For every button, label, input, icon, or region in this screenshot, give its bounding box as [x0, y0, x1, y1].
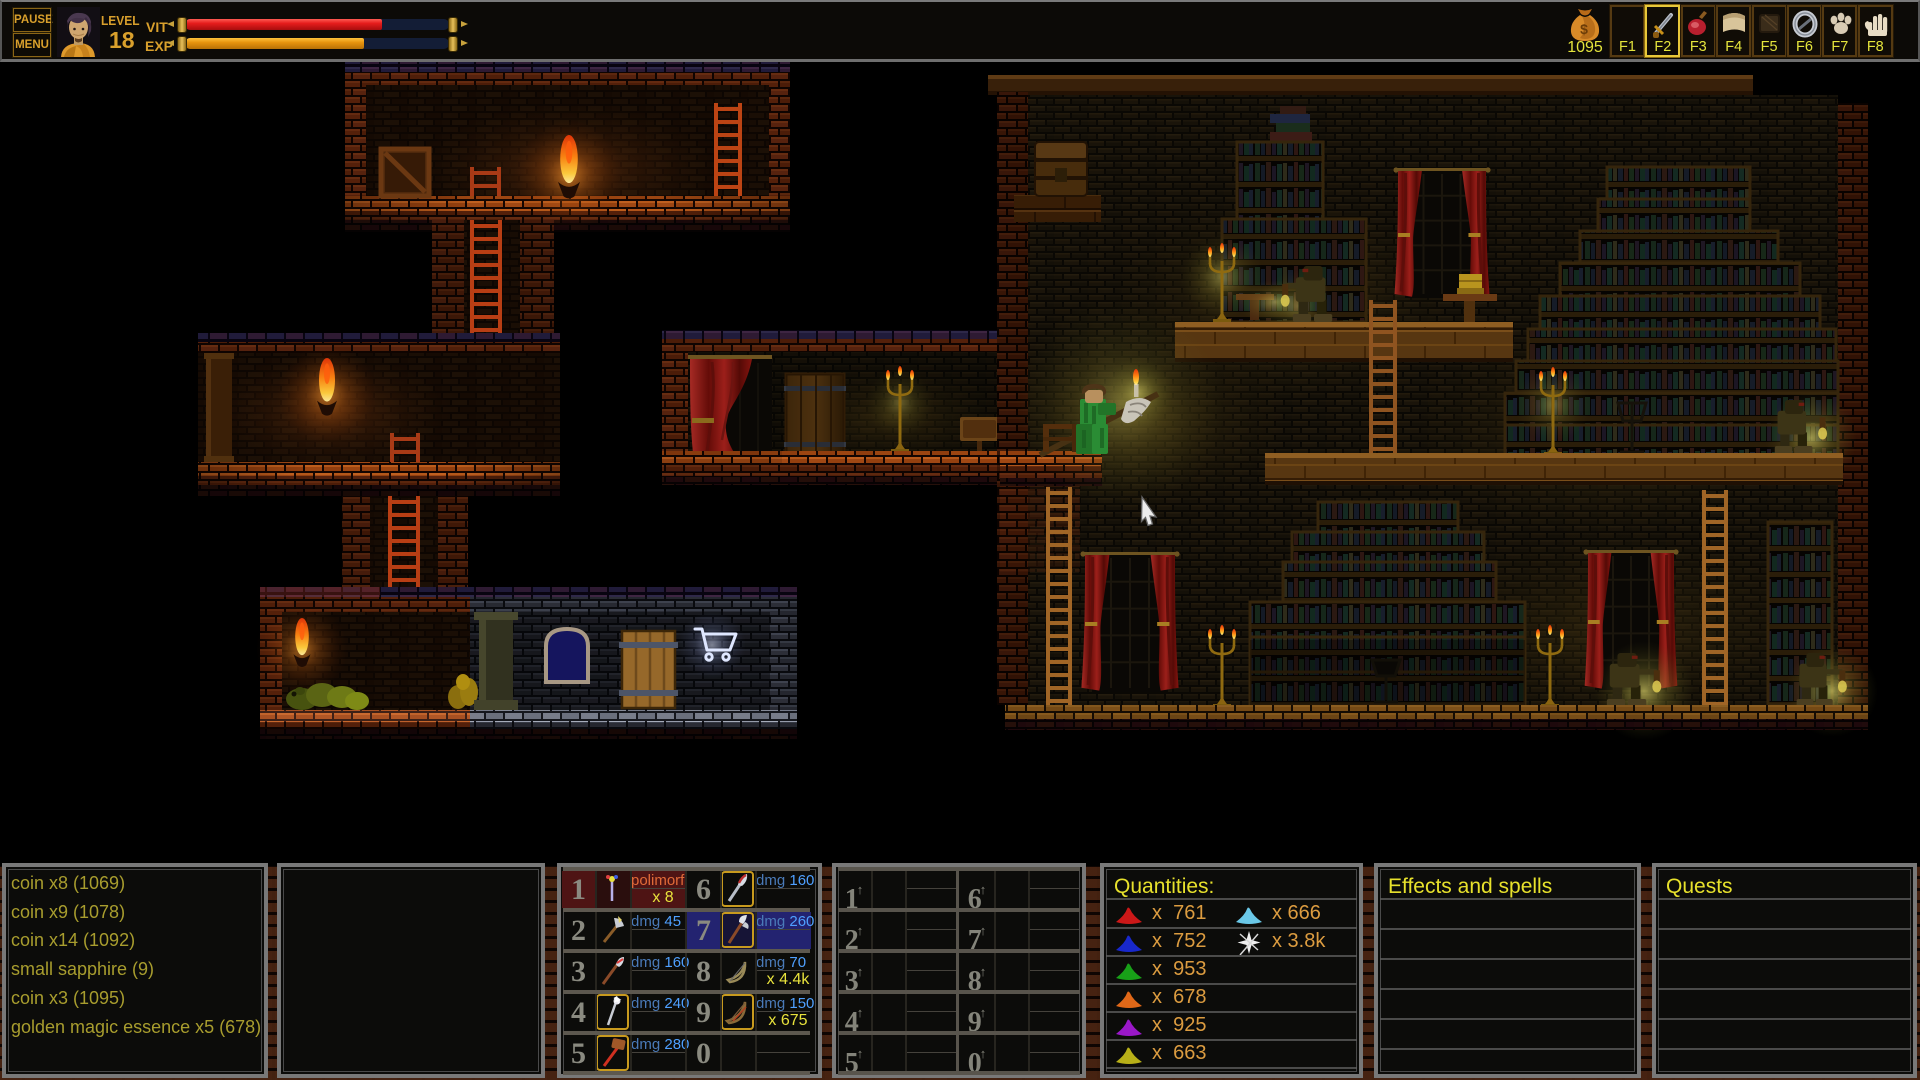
svg-text:$: $ — [1580, 21, 1588, 37]
